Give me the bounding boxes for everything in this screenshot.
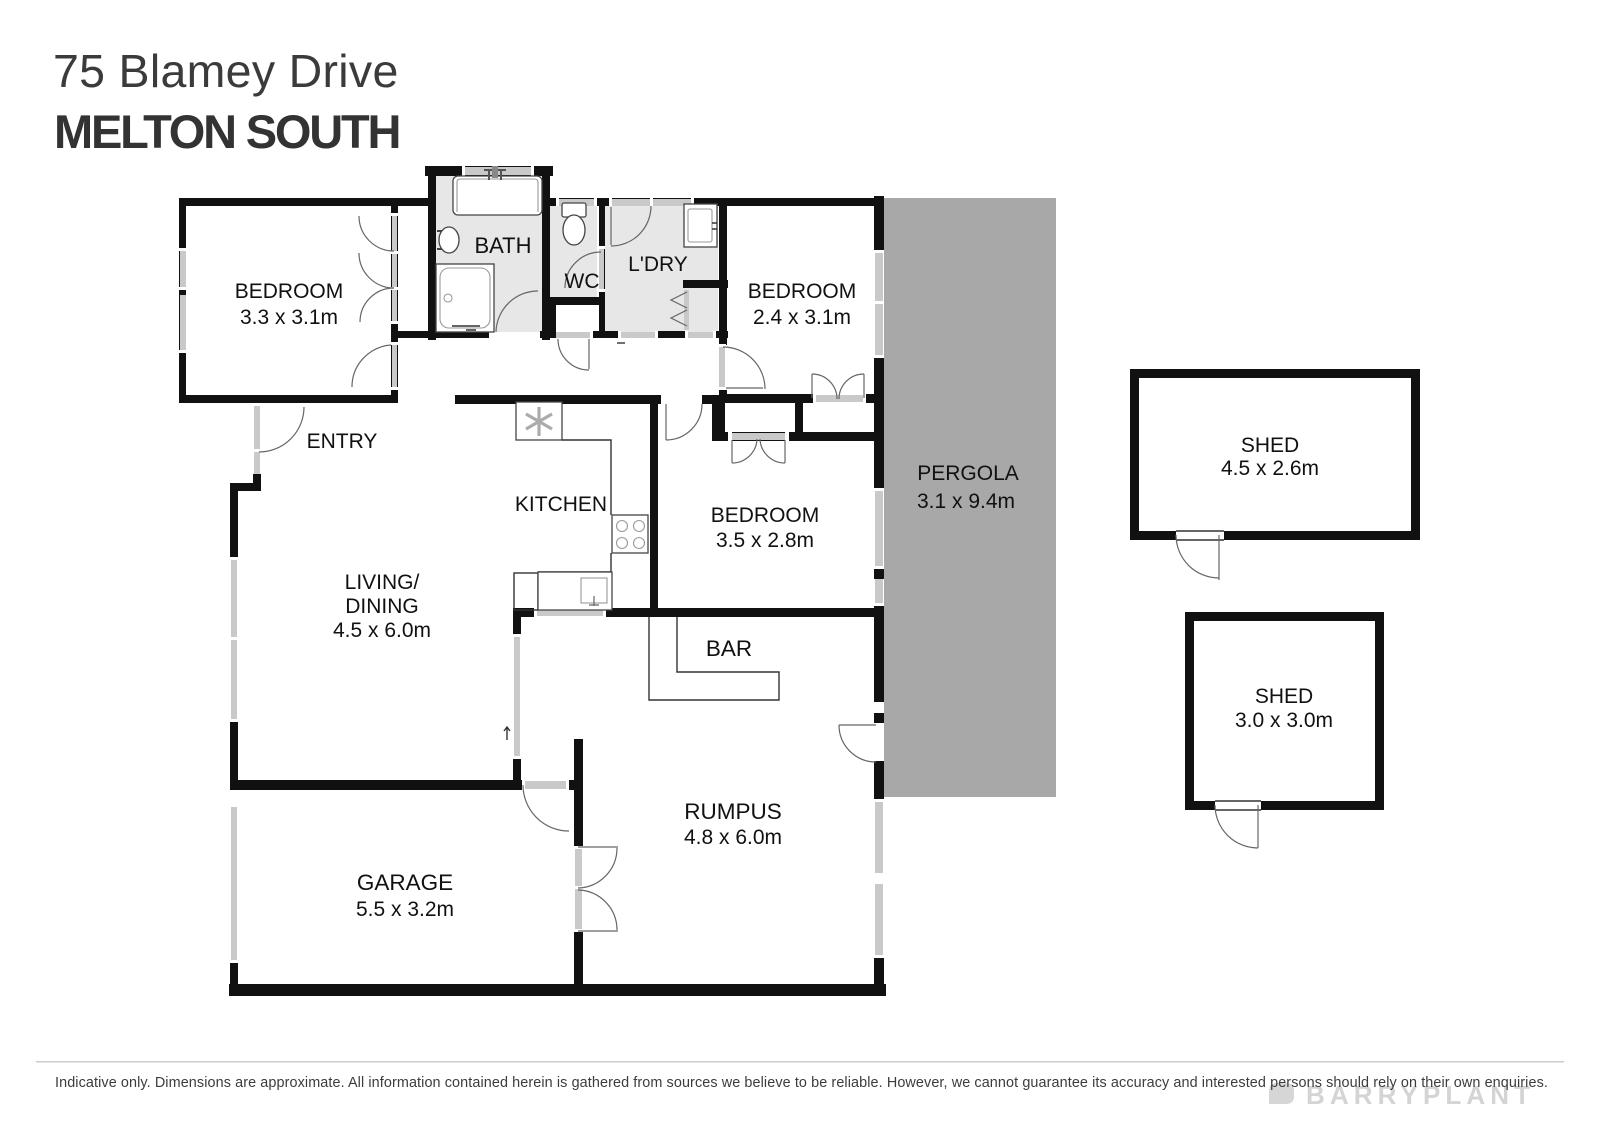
svg-text:4.8 x 6.0m: 4.8 x 6.0m	[684, 826, 782, 849]
svg-text:3.1 x 9.4m: 3.1 x 9.4m	[917, 490, 1015, 513]
svg-text:RUMPUS: RUMPUS	[684, 799, 782, 824]
svg-text:4.5 x 2.6m: 4.5 x 2.6m	[1221, 457, 1319, 480]
svg-text:75 Blamey Drive: 75 Blamey Drive	[53, 45, 399, 97]
svg-text:3.0 x 3.0m: 3.0 x 3.0m	[1235, 709, 1333, 732]
svg-text:PERGOLA: PERGOLA	[917, 462, 1019, 485]
svg-text:BATH: BATH	[474, 233, 531, 258]
svg-text:SHED: SHED	[1241, 434, 1299, 457]
svg-text:3.3 x 3.1m: 3.3 x 3.1m	[240, 306, 338, 329]
svg-text:LIVING/: LIVING/	[345, 571, 420, 594]
svg-text:BEDROOM: BEDROOM	[711, 504, 820, 527]
svg-text:4.5 x 6.0m: 4.5 x 6.0m	[333, 619, 431, 642]
svg-text:BEDROOM: BEDROOM	[748, 280, 857, 303]
svg-text:WC: WC	[565, 270, 600, 293]
svg-text:MELTON SOUTH: MELTON SOUTH	[54, 105, 399, 158]
svg-text:KITCHEN: KITCHEN	[515, 493, 607, 516]
svg-text:5.5 x 3.2m: 5.5 x 3.2m	[356, 898, 454, 921]
svg-text:SHED: SHED	[1255, 685, 1313, 708]
svg-text:L'DRY: L'DRY	[628, 253, 688, 276]
svg-text:Indicative only. Dimensions ar: Indicative only. Dimensions are approxim…	[55, 1075, 1548, 1091]
svg-text:BEDROOM: BEDROOM	[235, 280, 344, 303]
svg-text:3.5 x 2.8m: 3.5 x 2.8m	[716, 529, 814, 552]
svg-text:BAR: BAR	[706, 636, 752, 661]
svg-text:ENTRY: ENTRY	[307, 430, 378, 453]
svg-text:2.4 x 3.1m: 2.4 x 3.1m	[753, 306, 851, 329]
svg-text:GARAGE: GARAGE	[357, 870, 453, 895]
svg-text:DINING: DINING	[345, 595, 419, 618]
